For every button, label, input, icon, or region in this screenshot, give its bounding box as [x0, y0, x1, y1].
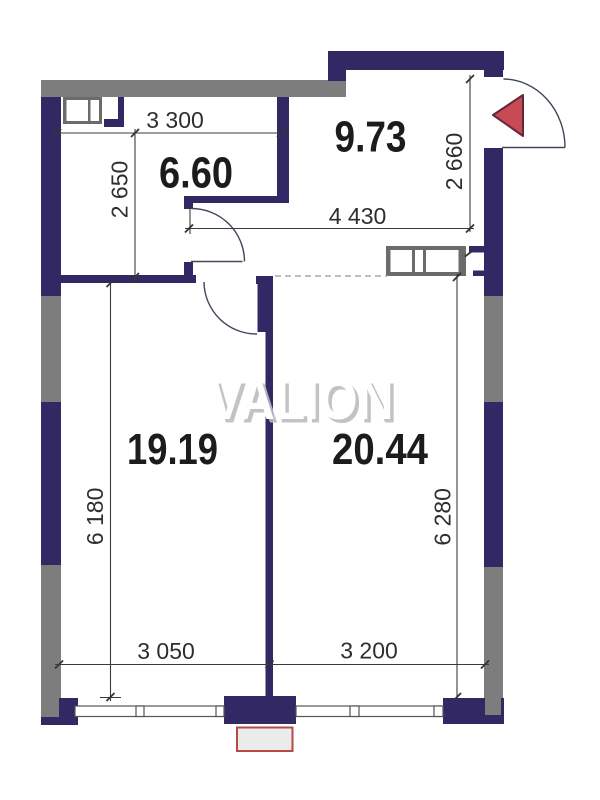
svg-text:6.60: 6.60 — [159, 150, 233, 198]
svg-text:3 200: 3 200 — [340, 638, 398, 664]
svg-text:4 430: 4 430 — [329, 203, 387, 229]
svg-text:9.73: 9.73 — [335, 114, 407, 162]
svg-text:3 300: 3 300 — [146, 107, 204, 133]
svg-text:19.19: 19.19 — [127, 426, 218, 474]
svg-text:6 280: 6 280 — [429, 488, 455, 546]
svg-text:3 050: 3 050 — [137, 638, 195, 664]
svg-text:6 180: 6 180 — [82, 488, 108, 546]
svg-text:2 660: 2 660 — [441, 133, 467, 191]
svg-text:2 650: 2 650 — [106, 161, 132, 219]
svg-text:VALION: VALION — [210, 368, 394, 432]
